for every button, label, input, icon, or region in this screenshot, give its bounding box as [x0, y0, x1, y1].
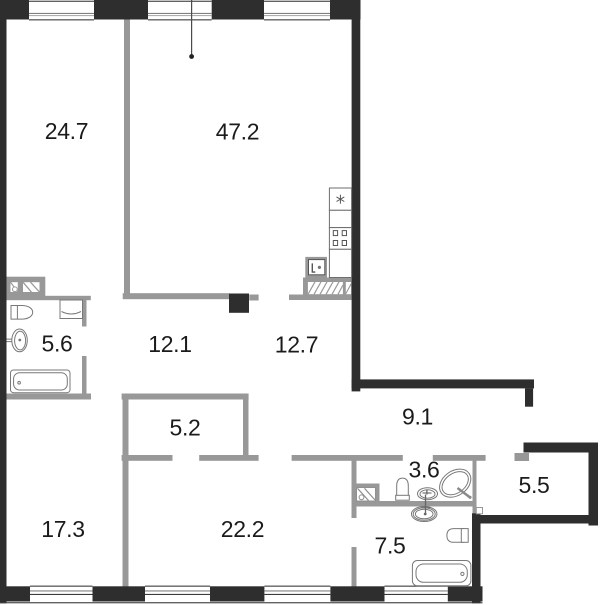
svg-text:7.5: 7.5: [374, 533, 405, 559]
svg-text:9.1: 9.1: [402, 404, 433, 430]
svg-text:12.7: 12.7: [275, 332, 319, 358]
svg-text:5.5: 5.5: [518, 472, 549, 498]
svg-text:12.1: 12.1: [148, 331, 192, 357]
svg-text:47.2: 47.2: [216, 119, 260, 145]
svg-text:5.2: 5.2: [169, 415, 200, 441]
svg-text:3.6: 3.6: [408, 457, 439, 483]
svg-text:24.7: 24.7: [45, 118, 89, 144]
svg-text:5.6: 5.6: [41, 331, 72, 357]
svg-text:17.3: 17.3: [41, 516, 85, 542]
svg-text:22.2: 22.2: [221, 516, 265, 542]
